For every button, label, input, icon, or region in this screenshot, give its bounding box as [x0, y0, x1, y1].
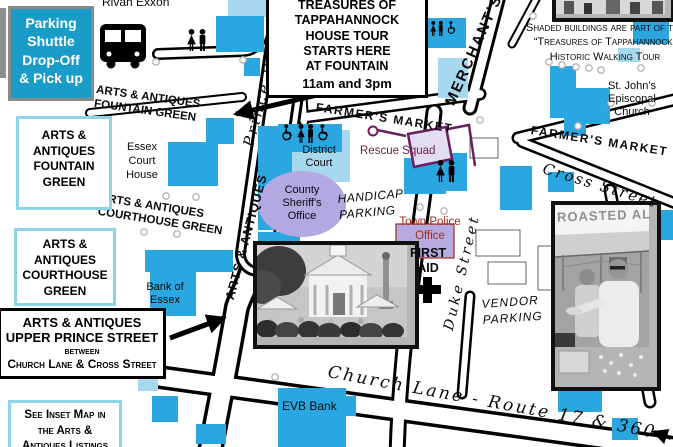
- shaded-buildings-note: Shaded buildings are part of the “Treasu…: [516, 21, 673, 64]
- top-right-photo: [552, 0, 673, 22]
- bank-of-essex-label: Bank of Essex: [138, 281, 192, 307]
- vendor-parking-label: VENDOR PARKING: [481, 291, 553, 328]
- upper-prince-line2: UPPER PRINCE STREET: [2, 330, 162, 345]
- house-tour-times: 11am and 3pm: [271, 76, 423, 91]
- courthouse-green-box: ARTS & ANTIQUES COURTHOUSE GREEN: [14, 228, 116, 306]
- st-johns-church-label: St. John's Episcopal Church: [604, 80, 660, 119]
- house-tour-box: TREASURES OF TAPPAHANNOCK HOUSE TOUR STA…: [266, 0, 428, 98]
- courthouse-green-photo: [253, 241, 419, 349]
- parking-shuttle-box: Parking Shuttle Drop-Off & Pick up: [8, 6, 94, 101]
- evb-bank-label: EVB Bank: [282, 399, 337, 413]
- upper-prince-box: ARTS & ANTIQUES UPPER PRINCE STREET betw…: [0, 308, 166, 379]
- first-aid-label: FIRST AID: [402, 246, 454, 276]
- vendor-photo: ROASTED AL: [551, 201, 661, 391]
- county-sheriff-label: County Sheriff's Office: [273, 184, 331, 223]
- house-tour-title: TREASURES OF TAPPAHANNOCK HOUSE TOUR STA…: [271, 0, 423, 74]
- rivah-exxon-label: Rivah Exxon: [102, 0, 169, 9]
- tappahannock-event-map: ROASTED AL Parking Shuttle Drop-Off & Pi…: [0, 0, 673, 447]
- rescue-squad-label: Rescue Squad: [360, 145, 450, 159]
- town-police-label: Town Police Office: [390, 216, 470, 243]
- upper-prince-line1: ARTS & ANTIQUES: [2, 315, 162, 330]
- upper-prince-line4: Church Lane & Cross Street: [2, 357, 162, 371]
- district-court-label: District Court: [290, 144, 348, 170]
- edge-artifact: [0, 8, 6, 78]
- essex-court-house-label: Essex Court House: [116, 141, 168, 182]
- upper-prince-arrow: [170, 318, 224, 338]
- upper-prince-line3: between: [2, 346, 162, 357]
- fountain-green-box: ARTS & ANTIQUES FOUNTAIN GREEN: [16, 116, 112, 210]
- inset-map-note: See Inset Map in the Arts & Antiques Lis…: [8, 400, 122, 447]
- roasted-almonds-sign: ROASTED AL: [557, 206, 649, 224]
- shuttle-bus-icon: [100, 24, 146, 69]
